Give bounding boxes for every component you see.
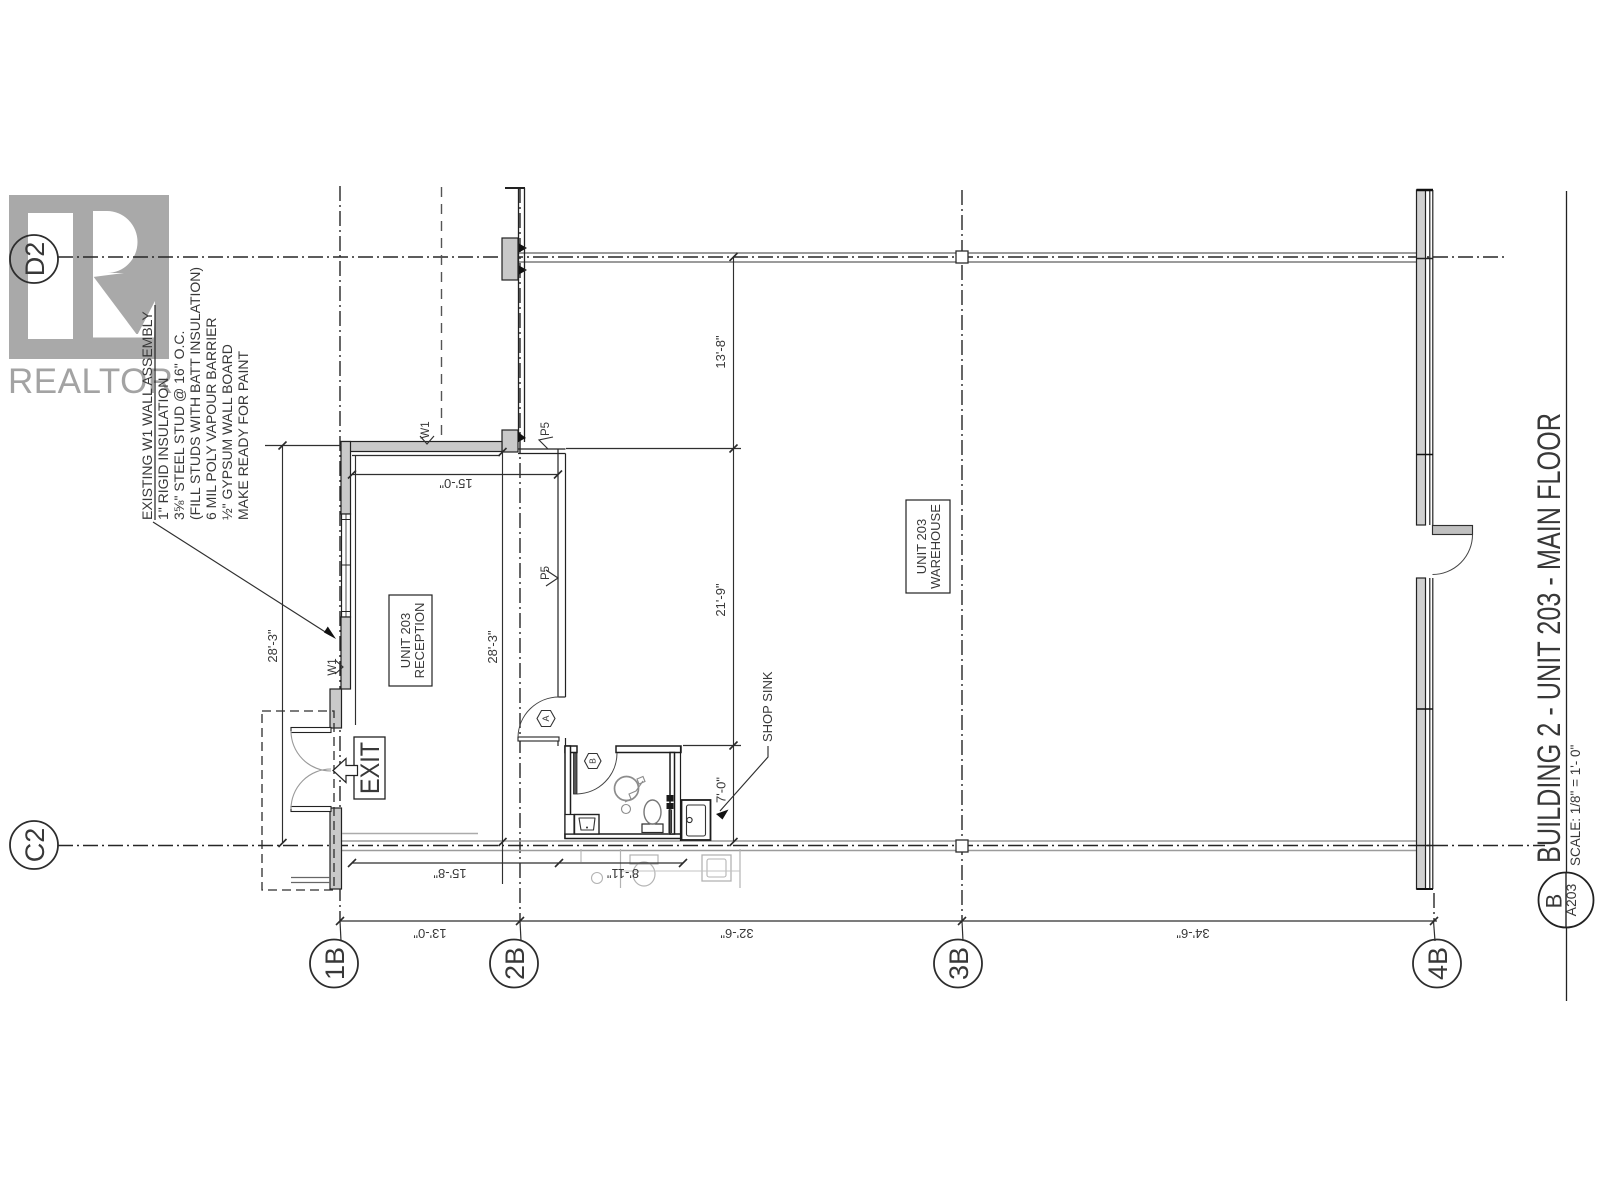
svg-text:34'-6": 34'-6"	[1176, 926, 1210, 941]
svg-text:C2: C2	[20, 828, 50, 863]
svg-text:B: B	[588, 758, 598, 764]
svg-text:3B: 3B	[944, 947, 974, 980]
svg-text:21'-9": 21'-9"	[713, 583, 728, 617]
svg-text:1" RIGID INSULATION: 1" RIGID INSULATION	[155, 378, 171, 520]
svg-text:15'-0": 15'-0"	[439, 476, 473, 491]
svg-text:A203: A203	[1563, 883, 1579, 916]
svg-text:32'-6": 32'-6"	[720, 926, 754, 941]
svg-text:RECEPTION: RECEPTION	[412, 603, 427, 679]
svg-text:8'-11": 8'-11"	[607, 866, 640, 881]
svg-text:EXISTING W1 WALL ASSEMBLY: EXISTING W1 WALL ASSEMBLY	[139, 311, 155, 520]
svg-text:7'-0": 7'-0"	[714, 777, 729, 803]
svg-text:W1: W1	[420, 421, 432, 438]
svg-text:2B: 2B	[500, 947, 530, 980]
svg-text:SCALE: 1/8" = 1'- 0": SCALE: 1/8" = 1'- 0"	[1568, 744, 1583, 866]
svg-text:P5: P5	[540, 422, 552, 436]
svg-text:UNIT 203: UNIT 203	[914, 519, 929, 574]
svg-text:15'-8": 15'-8"	[433, 866, 467, 881]
svg-text:28'-3": 28'-3"	[485, 630, 500, 664]
svg-text:4B: 4B	[1423, 947, 1453, 980]
svg-text:(FILL STUDS WITH BATT INSULATI: (FILL STUDS WITH BATT INSULATION)	[187, 267, 203, 520]
svg-text:UNIT 203: UNIT 203	[398, 613, 413, 668]
svg-text:28'-3": 28'-3"	[265, 629, 280, 663]
svg-text:½" GYPSUM WALL BOARD: ½" GYPSUM WALL BOARD	[219, 344, 235, 520]
svg-text:SHOP SINK: SHOP SINK	[760, 671, 775, 742]
svg-text:1B: 1B	[320, 947, 350, 980]
svg-text:3⅝" STEEL STUD @ 16" O.C.: 3⅝" STEEL STUD @ 16" O.C.	[171, 331, 187, 520]
svg-text:MAKE READY FOR PAINT: MAKE READY FOR PAINT	[235, 350, 251, 520]
svg-text:D2: D2	[20, 242, 50, 277]
svg-text:BUILDING 2 - UNIT 203 - MAIN F: BUILDING 2 - UNIT 203 - MAIN FLOOR	[1531, 413, 1567, 863]
svg-text:WAREHOUSE: WAREHOUSE	[928, 504, 943, 589]
svg-text:W1: W1	[327, 658, 339, 675]
svg-text:A: A	[541, 715, 551, 721]
svg-text:13'-0": 13'-0"	[413, 926, 447, 941]
svg-text:6 MIL POLY VAPOUR BARRIER: 6 MIL POLY VAPOUR BARRIER	[203, 317, 219, 520]
svg-text:13'-8": 13'-8"	[713, 335, 728, 369]
svg-text:EXIT: EXIT	[355, 742, 385, 794]
